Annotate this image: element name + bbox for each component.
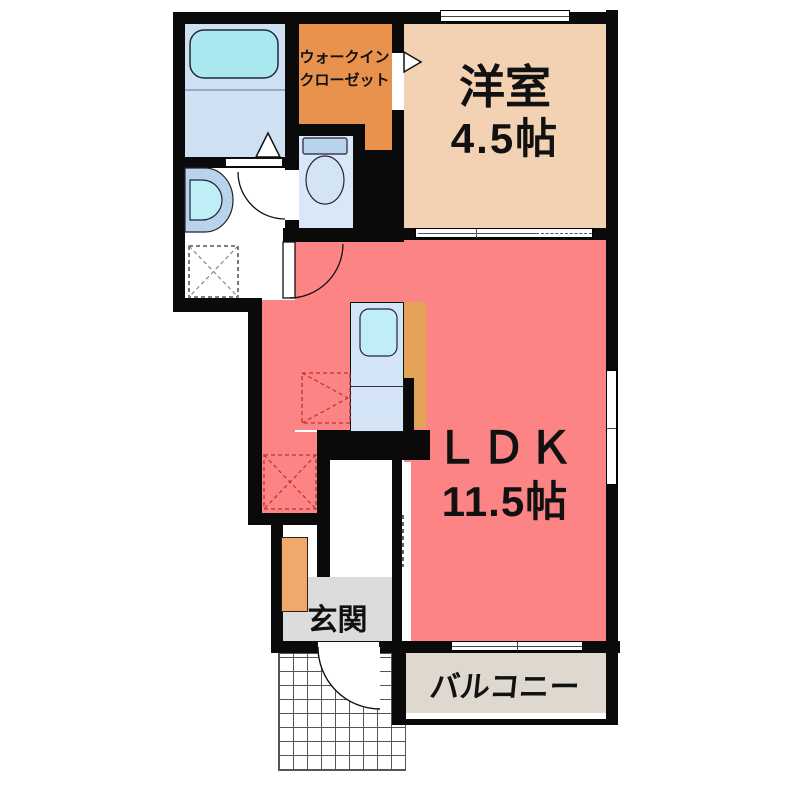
washroom-floor [185, 168, 285, 300]
kitchen-counter [404, 302, 426, 378]
wall [365, 150, 392, 230]
yoshitsu-label: 洋室 4.5帖 [404, 62, 606, 165]
wall [392, 12, 404, 228]
wall [392, 458, 402, 641]
ldk-floor-fridge-nook [262, 432, 317, 513]
window-ldk-balcony [451, 641, 583, 651]
walkin-closet-label-line2: クローゼット [299, 72, 389, 89]
window-ldk-right [606, 370, 617, 485]
wall [404, 719, 618, 725]
ldk-size: 11.5帖 [404, 475, 606, 530]
wall [173, 12, 185, 312]
doorway-toilet [285, 170, 299, 220]
wall [283, 228, 404, 242]
walkin-closet-label: ウォークイン クローゼット [297, 46, 392, 93]
walkin-closet-floor-ext [365, 124, 392, 150]
wall [606, 10, 618, 725]
kitchen-counter [414, 378, 426, 428]
ldk-label: ＬＤＫ 11.5帖 [404, 424, 606, 529]
kitchen-unit [350, 302, 404, 432]
kitchen-unit-divider [351, 386, 403, 387]
sliding-door-yoshitsu-ldk [415, 228, 593, 238]
yoshitsu-size: 4.5帖 [404, 113, 606, 166]
entrance-porch-tiles [278, 653, 406, 771]
floor-plan: ウォークイン クローゼット 洋室 4.5帖 ＬＤＫ 11.5帖 玄関 バルコニー [0, 0, 800, 800]
wall [353, 136, 365, 230]
doorway-entrance [317, 641, 380, 653]
hallway-floor [330, 460, 392, 577]
ldk-floor-left [260, 300, 295, 432]
genkan-label: 玄関 [283, 595, 392, 639]
wall [248, 298, 262, 515]
balcony-label: バルコニー [402, 662, 609, 706]
doorway-walkin-closet [392, 53, 404, 110]
toilet-room-floor [299, 136, 353, 228]
doorway-bathroom [225, 158, 283, 167]
ldk-name: ＬＤＫ [404, 424, 606, 475]
bathroom-floor [185, 24, 285, 157]
walkin-closet-label-line1: ウォークイン [299, 49, 389, 66]
wall [299, 124, 365, 136]
wall [173, 298, 260, 312]
yoshitsu-name: 洋室 [404, 62, 606, 113]
window-yoshitsu-top [440, 10, 570, 22]
